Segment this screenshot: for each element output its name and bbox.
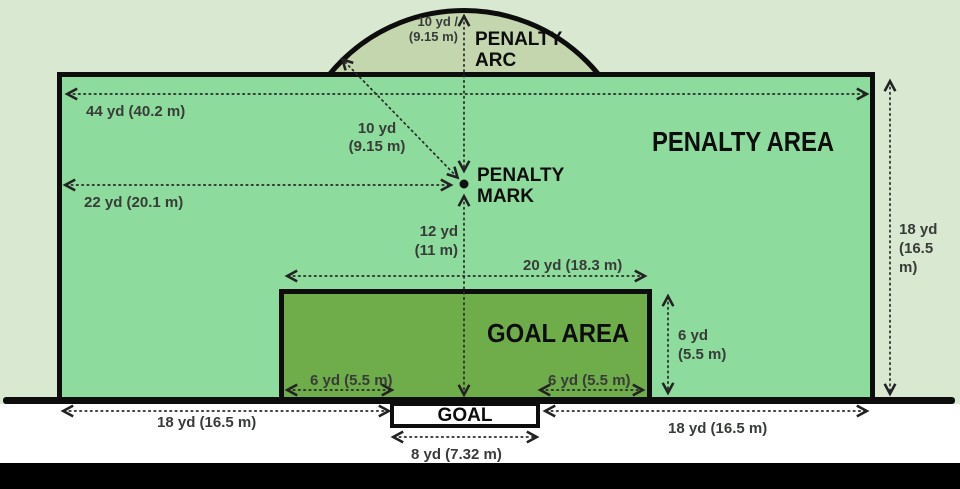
- pitch-diagram: 44 yd (40.2 m) 22 yd (20.1 m) 10 yd / (9…: [0, 0, 960, 489]
- label-18yd-bottom-left: 18 yd (16.5 m): [157, 414, 256, 432]
- label-mark-from-goal: 12 yd (11 m): [400, 222, 458, 260]
- label-penalty-mark: PENALTY MARK: [477, 165, 564, 207]
- measurement-lines: [0, 0, 960, 489]
- label-goal-area: GOAL AREA: [487, 320, 629, 346]
- label-18yd-depth: 18 yd (16.5 m): [899, 220, 937, 277]
- label-goal-area-width: 20 yd (18.3 m): [523, 257, 622, 275]
- label-6yd-right: 6 yd (5.5 m): [548, 372, 631, 390]
- bottom-black-bar: [0, 463, 960, 489]
- label-6yd-left: 6 yd (5.5 m): [310, 372, 393, 390]
- arrow-10yd-diagonal: [343, 60, 457, 177]
- label-penalty-arc: PENALTY ARC: [475, 29, 562, 71]
- label-mark-from-side: 22 yd (20.1 m): [84, 194, 183, 212]
- label-arc-radius: 10 yd / (9.15 m): [400, 14, 458, 44]
- label-18yd-bottom-right: 18 yd (16.5 m): [668, 420, 767, 438]
- label-penalty-area: PENALTY AREA: [652, 128, 834, 156]
- label-diag-radius: 10 yd (9.15 m): [345, 120, 409, 156]
- label-goal-width: 8 yd (7.32 m): [411, 446, 502, 464]
- label-6yd-depth: 6 yd (5.5 m): [678, 326, 726, 364]
- label-penalty-area-width: 44 yd (40.2 m): [86, 103, 185, 121]
- penalty-mark-dot: [460, 180, 469, 189]
